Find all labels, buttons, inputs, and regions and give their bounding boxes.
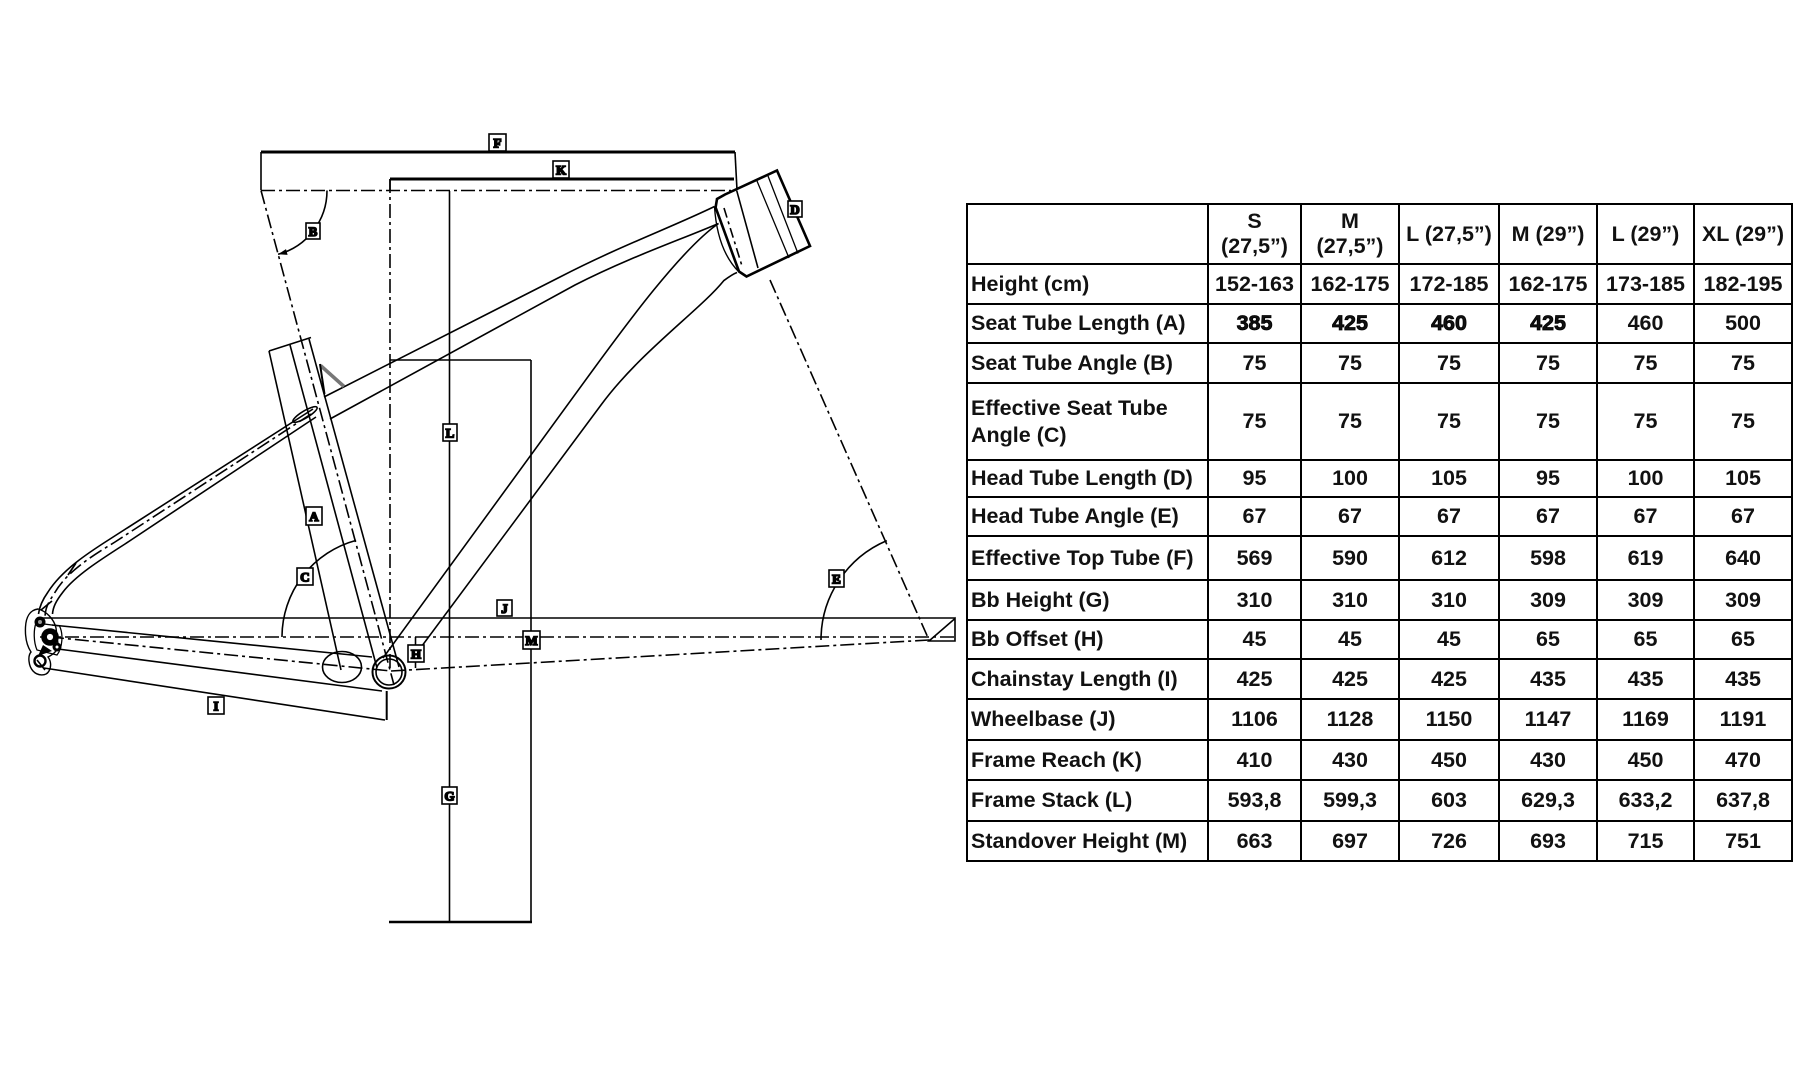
svg-text:M: M (525, 633, 537, 648)
svg-text:J: J (501, 601, 508, 616)
svg-text:B: B (309, 224, 318, 239)
svg-text:K: K (556, 163, 567, 178)
svg-text:I: I (213, 699, 218, 714)
svg-text:D: D (790, 202, 799, 217)
svg-text:A: A (309, 509, 319, 524)
svg-text:L: L (446, 426, 455, 441)
svg-text:H: H (411, 647, 421, 662)
svg-text:G: G (444, 789, 454, 804)
svg-text:E: E (832, 572, 841, 587)
svg-text:C: C (300, 570, 309, 585)
svg-text:F: F (494, 136, 502, 151)
